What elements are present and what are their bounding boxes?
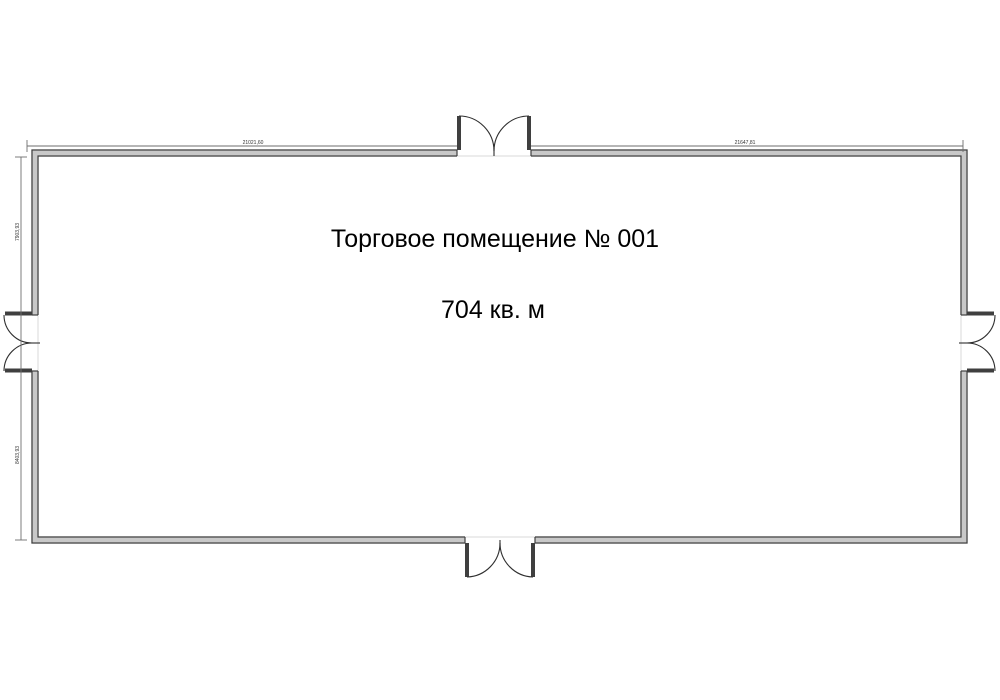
door-leaf-top-left [457, 116, 461, 150]
door-swing-arc [4, 343, 32, 371]
floor-plan-drawing: 21021,60 21647,81 7903,93 8403,93 Торгов… [0, 0, 1000, 700]
door-leaf-right-top [967, 312, 994, 316]
floor-plan-canvas: 21021,60 21647,81 7903,93 8403,93 Торгов… [0, 0, 1000, 700]
dimension-label-left-upper: 7903,93 [15, 223, 21, 241]
room-title: Торговое помещение № 001 [331, 225, 659, 253]
door-leaf-right-bottom [967, 369, 994, 373]
inner-wall-line [38, 156, 961, 537]
door-swing-arc [967, 315, 995, 343]
room-area: 704 кв. м [441, 296, 545, 324]
door-leaf-left-top [5, 312, 32, 316]
door-leaf-bottom-right [531, 543, 535, 577]
door-swing-arc [4, 315, 32, 343]
door-swing-arc [467, 543, 500, 577]
wall-band [35, 153, 964, 540]
door-swing-arc [500, 543, 533, 577]
door-leaf-bottom-left [465, 543, 469, 577]
dimension-label-top-left: 21021,60 [243, 140, 264, 146]
door-leaf-top-right [527, 116, 531, 150]
door-swing-arc [459, 116, 494, 151]
door-swing-arc [494, 116, 529, 151]
door-leaf-left-bottom [5, 369, 32, 373]
dimension-label-left-lower: 8403,93 [15, 446, 21, 464]
dimension-label-top-right: 21647,81 [735, 140, 756, 146]
outer-wall-line [32, 150, 967, 543]
door-swing-arc [967, 343, 995, 371]
